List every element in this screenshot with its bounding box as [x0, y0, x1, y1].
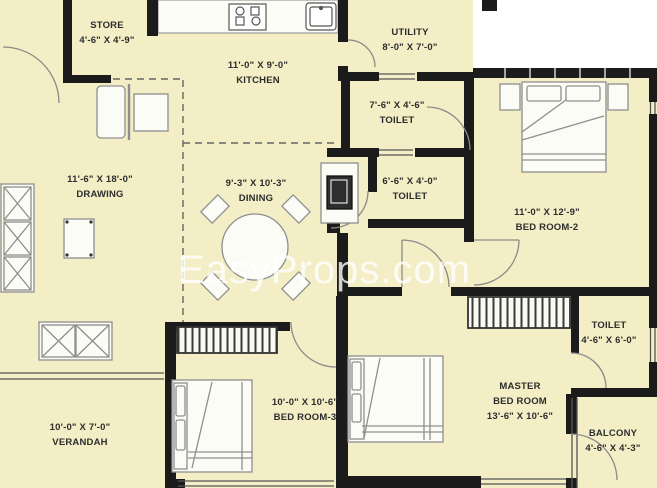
wardrobe-icon-bedroom3	[177, 327, 277, 353]
room-label-verandah: 10'-0" X 7'-0"VERANDAH	[30, 420, 130, 450]
room-label-master-bedroom: MASTERBED ROOM13'-6" X 10'-6"	[470, 379, 570, 424]
room-label-drawing: 11'-6" X 18'-0"DRAWING	[50, 172, 150, 202]
bed-icon-master	[348, 356, 443, 442]
room-label-bedroom2: 11'-0" X 12'-9"BED ROOM-2	[492, 205, 602, 235]
fridge-niche-icon	[321, 163, 358, 223]
kitchen-counter	[158, 0, 338, 33]
wardrobe-icon-master	[468, 297, 570, 328]
sink-icon	[306, 3, 336, 30]
coffee-table-icon	[64, 219, 94, 258]
room-label-store: STORE4'-6" X 4'-9"	[57, 18, 157, 48]
watermark: EasyProps.com	[178, 248, 471, 293]
sofa-icon	[1, 184, 34, 292]
room-label-toilet-right: TOILET4'-6" X 6'-0"	[566, 318, 652, 348]
room-label-dining: 9'-3" X 10'-3"DINING	[206, 176, 306, 206]
bed-icon-bedroom3	[172, 380, 252, 472]
stove-icon	[229, 4, 266, 30]
floor-plan: STORE4'-6" X 4'-9" 11'-0" X 9'-0"KITCHEN…	[0, 0, 657, 488]
room-label-balcony: BALCONY4'-6" X 4'-3"	[568, 426, 657, 456]
room-label-bedroom3: 10'-0" X 10'-6"BED ROOM-3	[255, 395, 355, 425]
room-label-utility: UTILITY8'-0" X 7'-0"	[360, 25, 460, 55]
window-seat-icon	[39, 322, 112, 360]
room-label-toilet-mid: 6'-6" X 4'-0"TOILET	[362, 174, 458, 204]
room-label-kitchen: 11'-0" X 9'-0"KITCHEN	[208, 58, 308, 88]
room-label-toilet-top: 7'-6" X 4'-6"TOILET	[347, 98, 447, 128]
